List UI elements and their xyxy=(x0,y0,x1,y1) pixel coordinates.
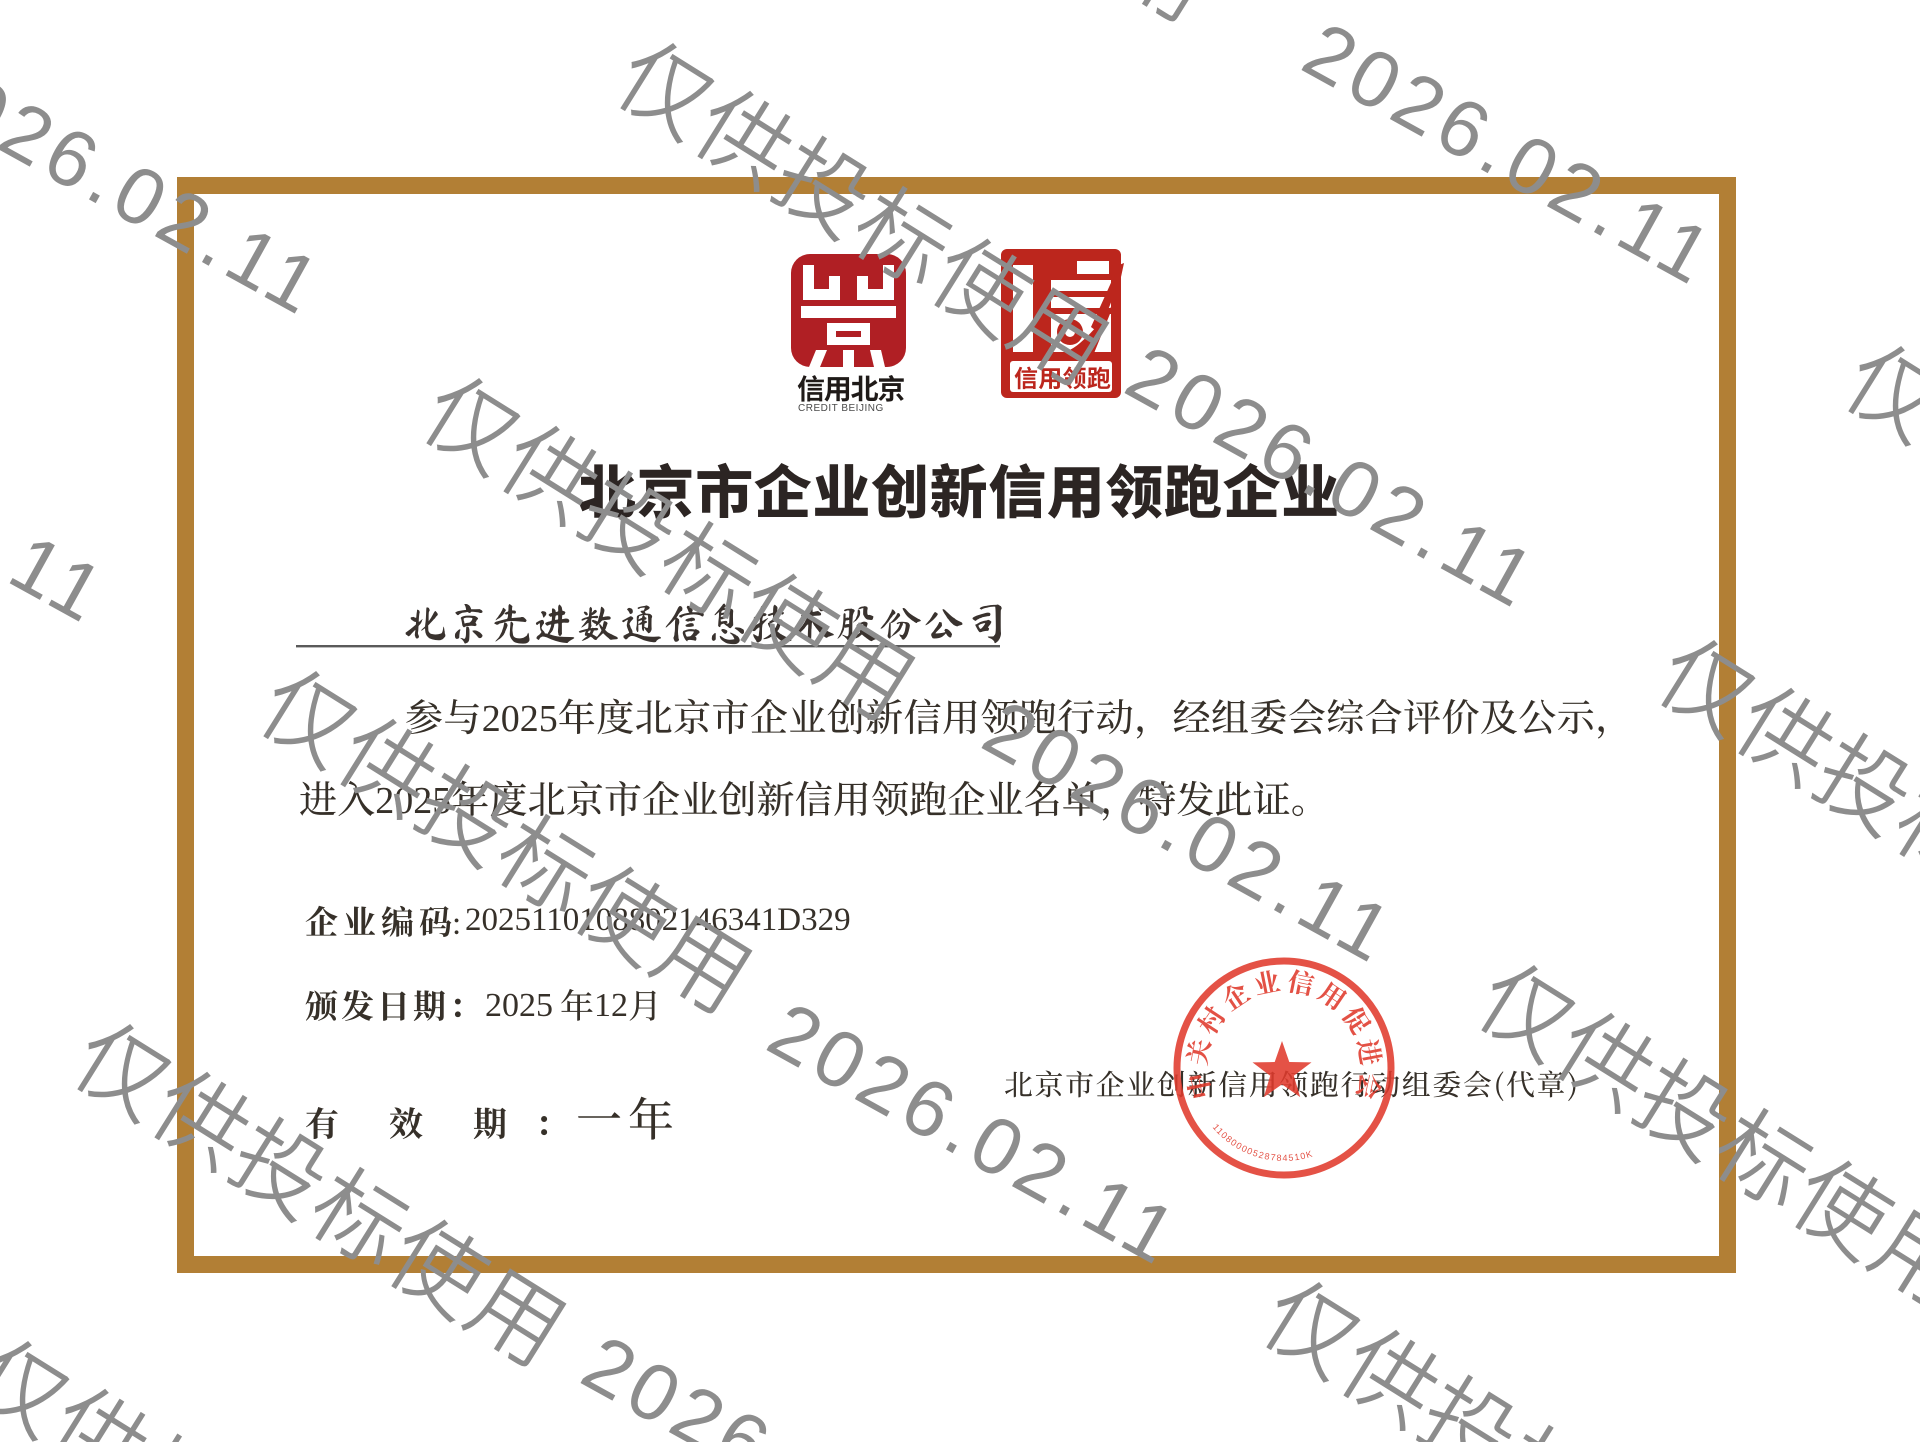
svg-text:2025: 2025 xyxy=(482,698,558,740)
svg-text:CREDIT BEIJING: CREDIT BEIJING xyxy=(798,403,884,414)
svg-text:12: 12 xyxy=(594,987,628,1024)
svg-text:2025: 2025 xyxy=(375,780,451,822)
svg-text:2025: 2025 xyxy=(485,987,553,1024)
svg-text::: : xyxy=(452,906,461,942)
